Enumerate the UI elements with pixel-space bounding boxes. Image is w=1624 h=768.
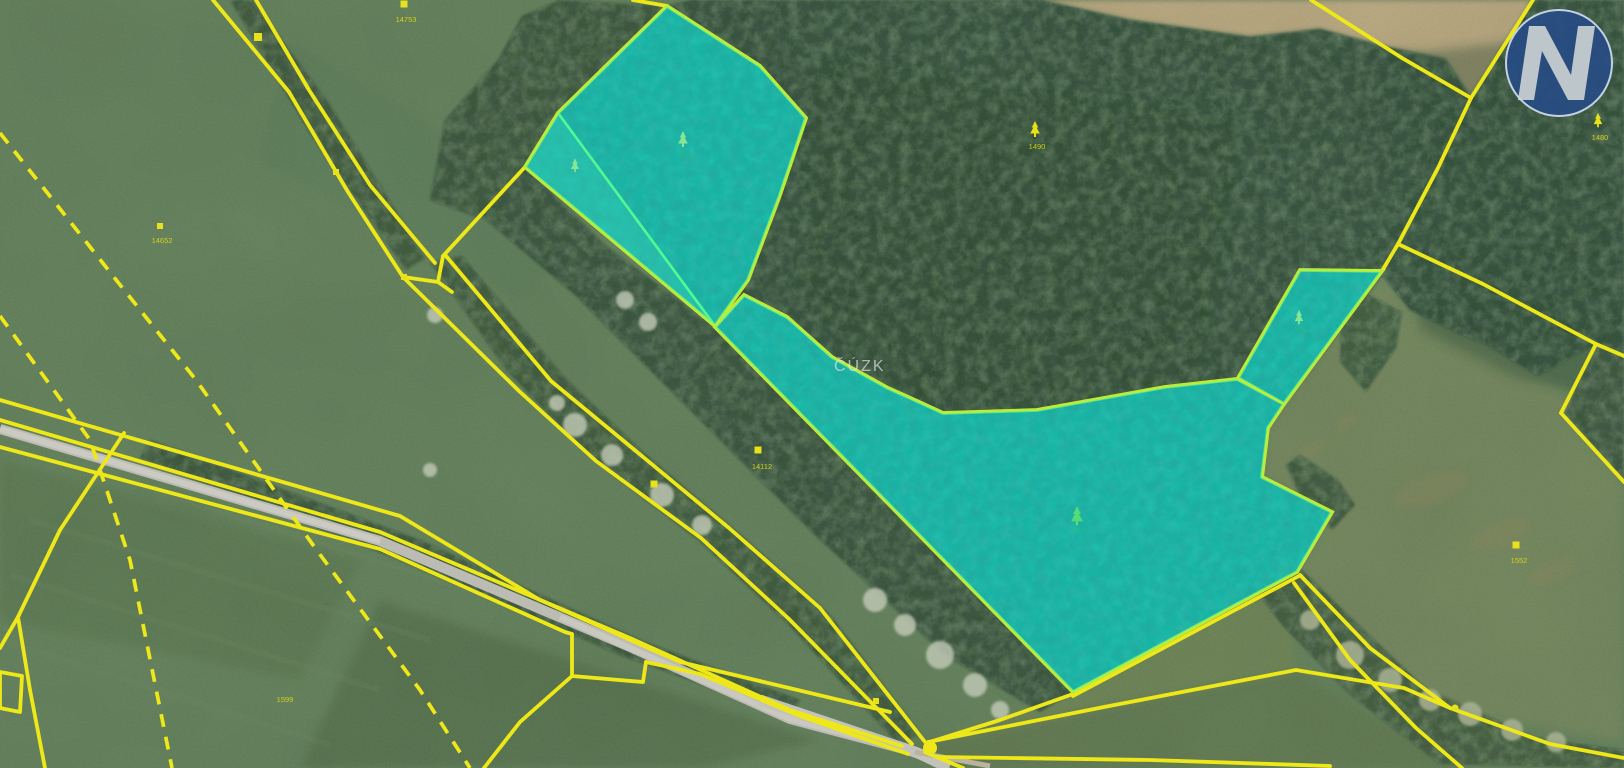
svg-text:14112: 14112 xyxy=(752,462,772,471)
svg-text:ČÚZK: ČÚZK xyxy=(834,356,886,375)
svg-text:1490: 1490 xyxy=(1029,142,1046,151)
svg-text:4147: 4147 xyxy=(1072,529,1086,535)
svg-text:1480: 1480 xyxy=(1592,133,1609,142)
svg-text:14753: 14753 xyxy=(396,15,417,24)
svg-text:14652: 14652 xyxy=(152,236,173,245)
svg-text:1552: 1552 xyxy=(1511,556,1528,565)
svg-text:4148: 4148 xyxy=(1294,328,1308,334)
svg-text:1599: 1599 xyxy=(277,695,294,704)
svg-text:4149: 4149 xyxy=(678,153,692,159)
